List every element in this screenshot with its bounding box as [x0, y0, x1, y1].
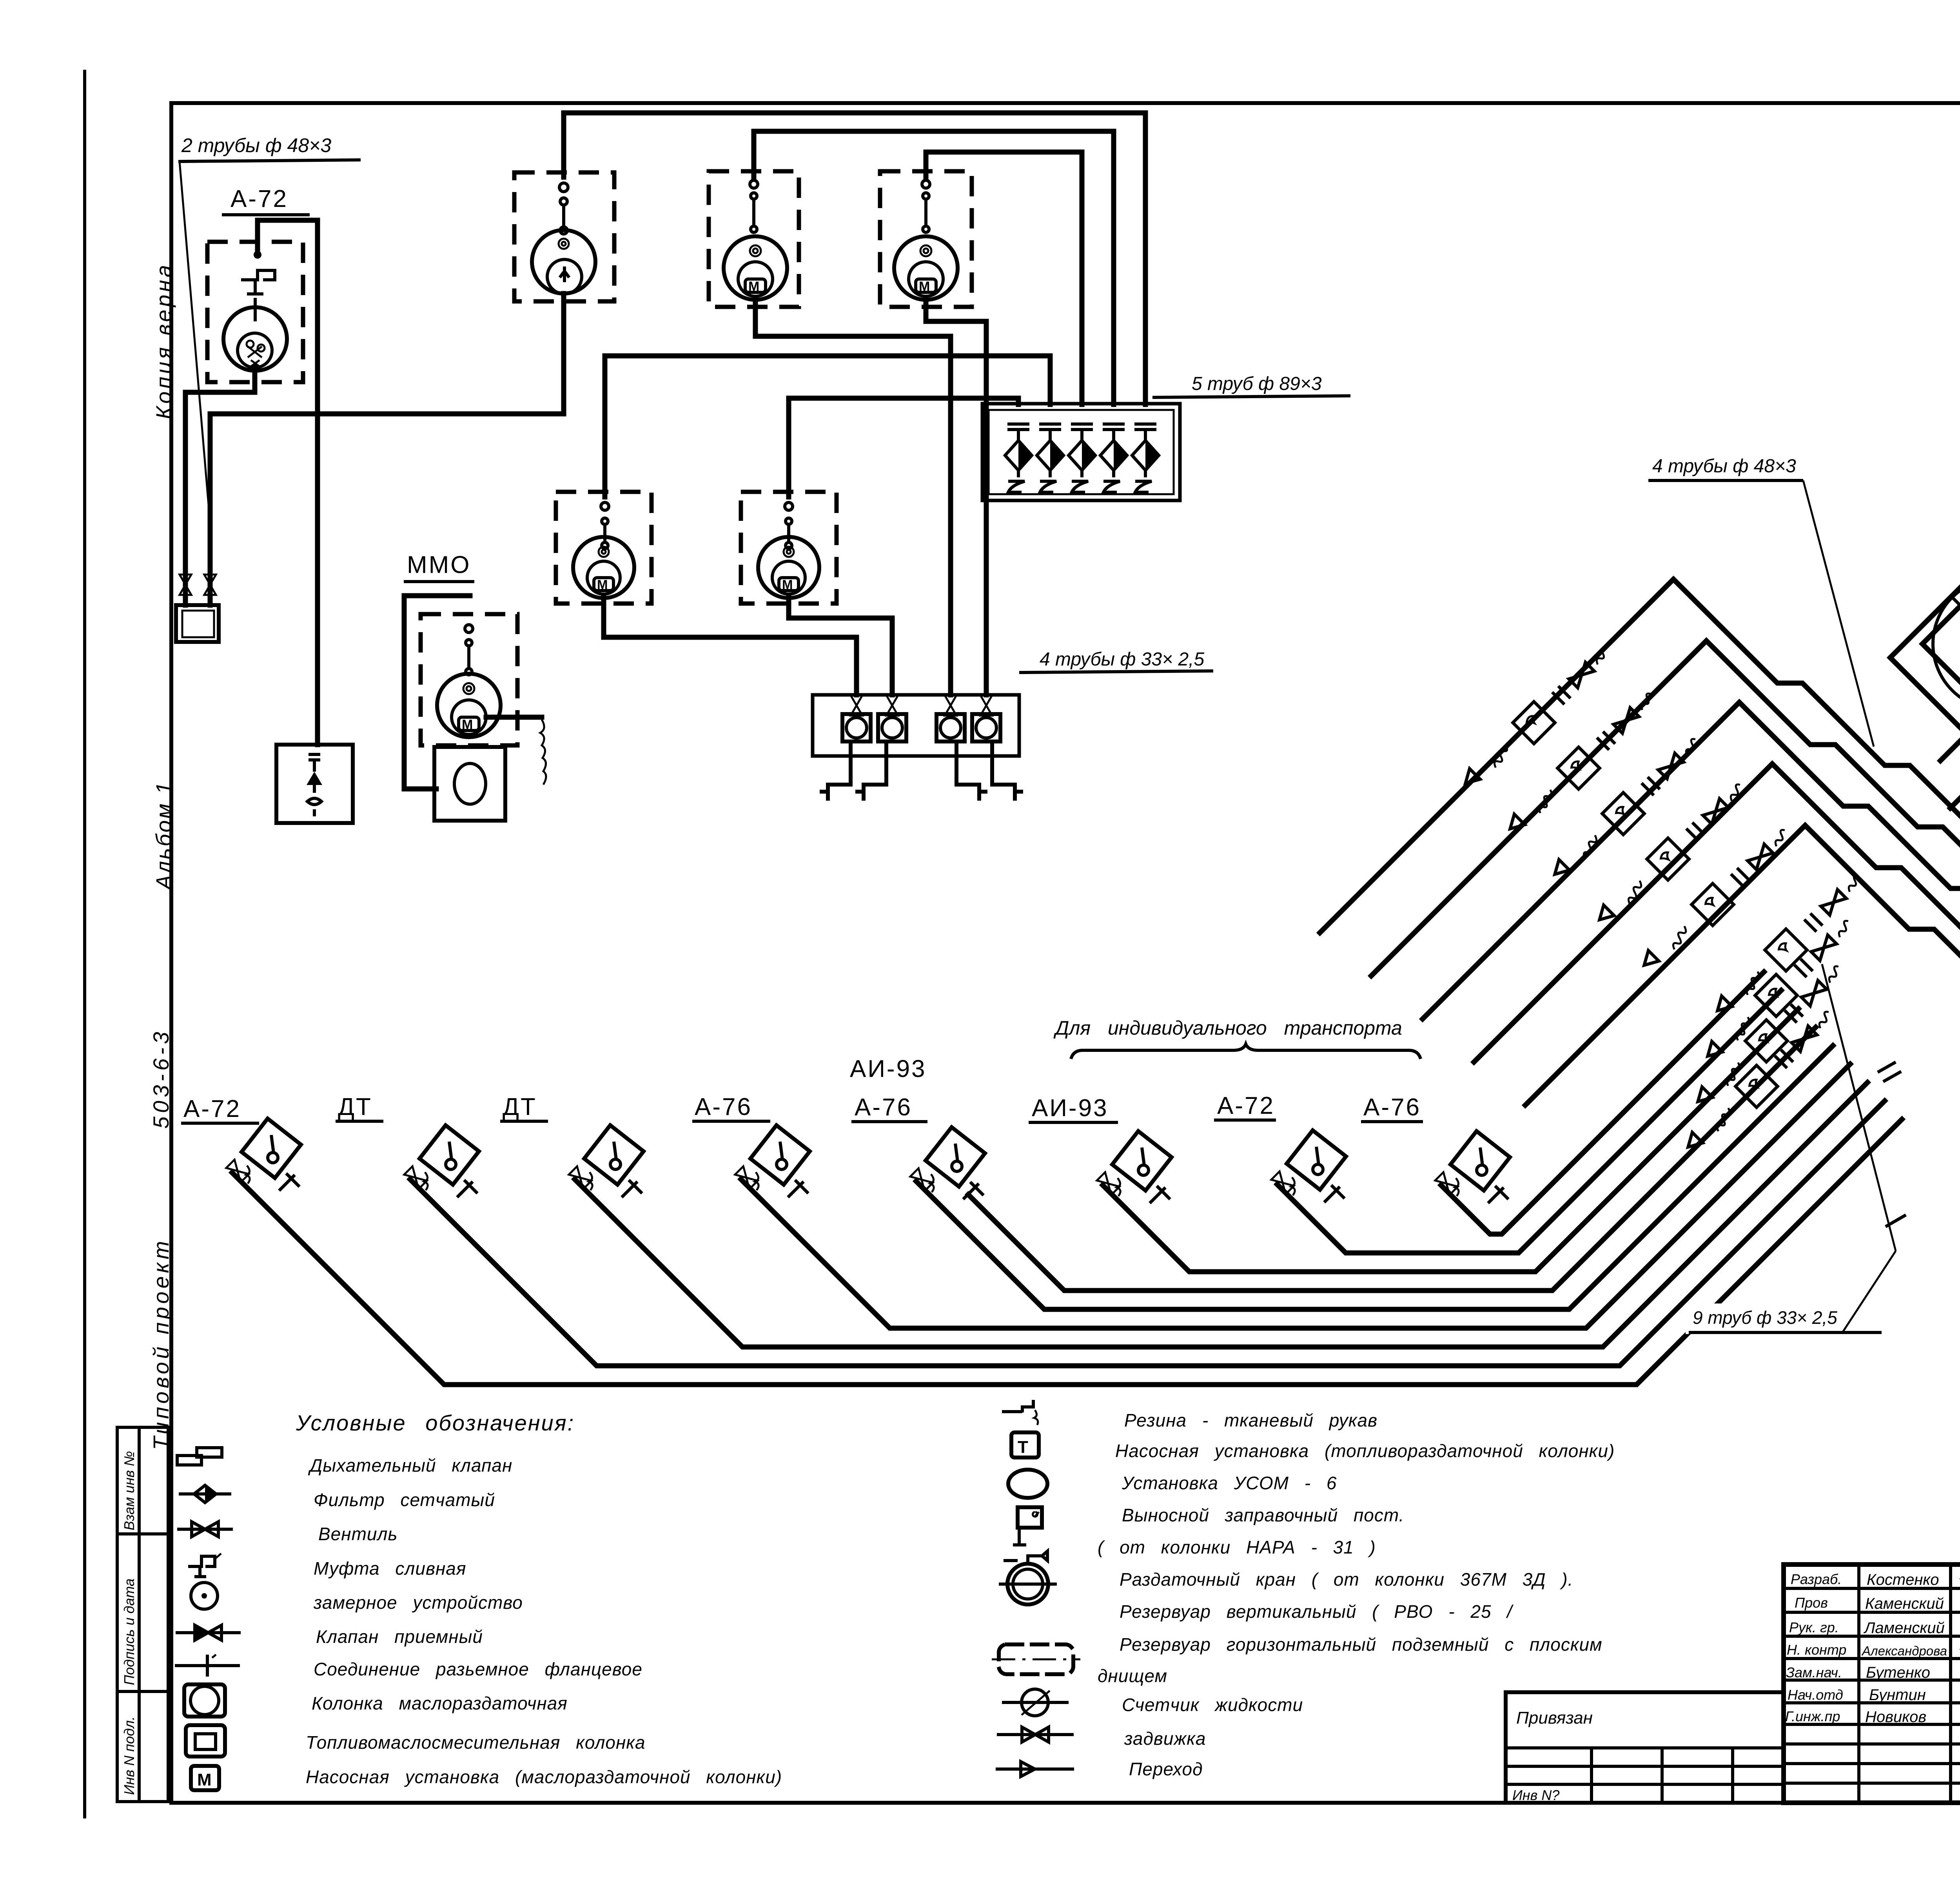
svg-text:А-72: А-72: [1217, 1092, 1275, 1119]
svg-text:Соединение разьемное флан: Соединение разьемное фланцевое: [314, 1659, 642, 1679]
svg-text:Для индивидуального транс: Для индивидуального транспорта: [1053, 1017, 1402, 1039]
svg-text:М: М: [919, 279, 930, 294]
svg-text:Подпись и дата: Подпись и дата: [121, 1579, 137, 1685]
svg-text:ДТ: ДТ: [338, 1093, 372, 1120]
svg-text:Насосная установка (маслор: Насосная установка (маслораздаточной кол…: [306, 1767, 782, 1787]
svg-text:4 трубы ф 33× 2,5: 4 трубы ф 33× 2,5: [1040, 649, 1205, 670]
svg-text:Альбом 1: Альбом 1: [151, 781, 176, 891]
svg-text:Т: Т: [1018, 1438, 1028, 1457]
svg-text:задвижка: задвижка: [1124, 1728, 1206, 1749]
svg-text:Бунтин: Бунтин: [1869, 1686, 1926, 1704]
svg-text:Клапан приемный: Клапан приемный: [316, 1626, 483, 1647]
svg-text:Рук. гр.: Рук. гр.: [1789, 1619, 1839, 1635]
svg-text:Дыхательный клапан: Дыхательный клапан: [308, 1455, 512, 1476]
svg-text:Взам инв №: Взам инв №: [121, 1451, 137, 1530]
svg-text:Костенко: Костенко: [1867, 1571, 1939, 1588]
svg-text:А-72: А-72: [230, 185, 288, 212]
svg-text:( от колонки НАРА - 31 ): ( от колонки НАРА - 31 ): [1098, 1537, 1376, 1557]
svg-text:Установка УСОМ - 6: Установка УСОМ - 6: [1122, 1473, 1337, 1493]
svg-text:М: М: [597, 577, 608, 592]
svg-text:Типовой проект: Типовой проект: [149, 1238, 173, 1450]
svg-text:А-76: А-76: [695, 1093, 752, 1120]
svg-text:Фильтр сетчатый: Фильтр сетчатый: [314, 1490, 495, 1510]
svg-text:503-6-3: 503-6-3: [149, 1028, 173, 1129]
svg-text:А-72: А-72: [183, 1095, 241, 1122]
svg-text:днищем: днищем: [1098, 1666, 1167, 1686]
svg-text:Копия верна: Копия верна: [151, 262, 176, 419]
svg-text:Резервуар вертикальный ( Р: Резервуар вертикальный ( РВО - 25 /: [1120, 1601, 1514, 1622]
svg-text:Зам.нач.: Зам.нач.: [1786, 1664, 1842, 1680]
svg-text:4 трубы ф 48×3: 4 трубы ф 48×3: [1652, 456, 1796, 477]
svg-text:А-76: А-76: [1363, 1094, 1421, 1121]
svg-text:Новиков: Новиков: [1865, 1708, 1926, 1726]
svg-text:М: М: [782, 577, 793, 592]
svg-text:М: М: [462, 717, 473, 732]
svg-text:АИ-93: АИ-93: [850, 1055, 927, 1082]
svg-text:Резина - тканевый рукав: Резина - тканевый рукав: [1124, 1410, 1377, 1430]
svg-text:Топливомаслосмесительная кол: Топливомаслосмесительная колонка: [306, 1732, 646, 1753]
svg-text:Вентиль: Вентиль: [318, 1524, 398, 1544]
svg-text:Г.инж.пр: Г.инж.пр: [1785, 1708, 1840, 1724]
svg-text:Бутенко: Бутенко: [1866, 1664, 1930, 1681]
svg-text:Ламенский: Ламенский: [1863, 1619, 1945, 1637]
svg-text:Выносной заправочный пос: Выносной заправочный пост.: [1122, 1505, 1404, 1525]
svg-text:Каменский: Каменский: [1865, 1595, 1944, 1612]
svg-text:Пров: Пров: [1795, 1595, 1828, 1611]
svg-text:Муфта сливная: Муфта сливная: [314, 1558, 466, 1579]
svg-text:Н. контр: Н. контр: [1787, 1642, 1846, 1658]
svg-text:5 труб ф 89×3: 5 труб ф 89×3: [1192, 373, 1322, 394]
svg-text:Резервуар горизонтальный: Резервуар горизонтальный подземный с пло…: [1120, 1634, 1602, 1655]
svg-text:М: М: [748, 279, 759, 294]
svg-text:Насосная установка (топливо: Насосная установка (топливораздаточной к…: [1115, 1441, 1615, 1461]
svg-text:Привязан: Привязан: [1516, 1708, 1593, 1728]
svg-text:Александрова: Александрова: [1861, 1644, 1947, 1658]
svg-text:9 труб ф 33× 2,5: 9 труб ф 33× 2,5: [1693, 1307, 1837, 1328]
svg-text:АИ-93: АИ-93: [1032, 1095, 1109, 1122]
svg-text:2 трубы ф 48×3: 2 трубы ф 48×3: [181, 134, 331, 156]
svg-text:Колонка маслораздаточная: Колонка маслораздаточная: [312, 1693, 568, 1713]
svg-text:ДТ: ДТ: [503, 1093, 537, 1120]
svg-text:ММО: ММО: [407, 551, 471, 578]
svg-text:Счетчик жидкости: Счетчик жидкости: [1122, 1695, 1303, 1715]
svg-text:Условные обозначения:: Условные обозначения:: [296, 1410, 575, 1435]
svg-text:М: М: [197, 1770, 212, 1789]
svg-text:Инв N?: Инв N?: [1512, 1787, 1559, 1803]
svg-text:Инв N подл.: Инв N подл.: [121, 1717, 137, 1795]
svg-text:Нач.отд: Нач.отд: [1788, 1687, 1843, 1703]
svg-text:Разраб.: Разраб.: [1791, 1571, 1842, 1587]
svg-text:Переход: Переход: [1129, 1759, 1203, 1779]
svg-text:замерное устройство: замерное устройство: [313, 1592, 523, 1613]
svg-text:Раздаточный кран ( от: Раздаточный кран ( от колонки 367М 3Д ).: [1120, 1569, 1573, 1590]
svg-text:А-76: А-76: [855, 1094, 912, 1121]
